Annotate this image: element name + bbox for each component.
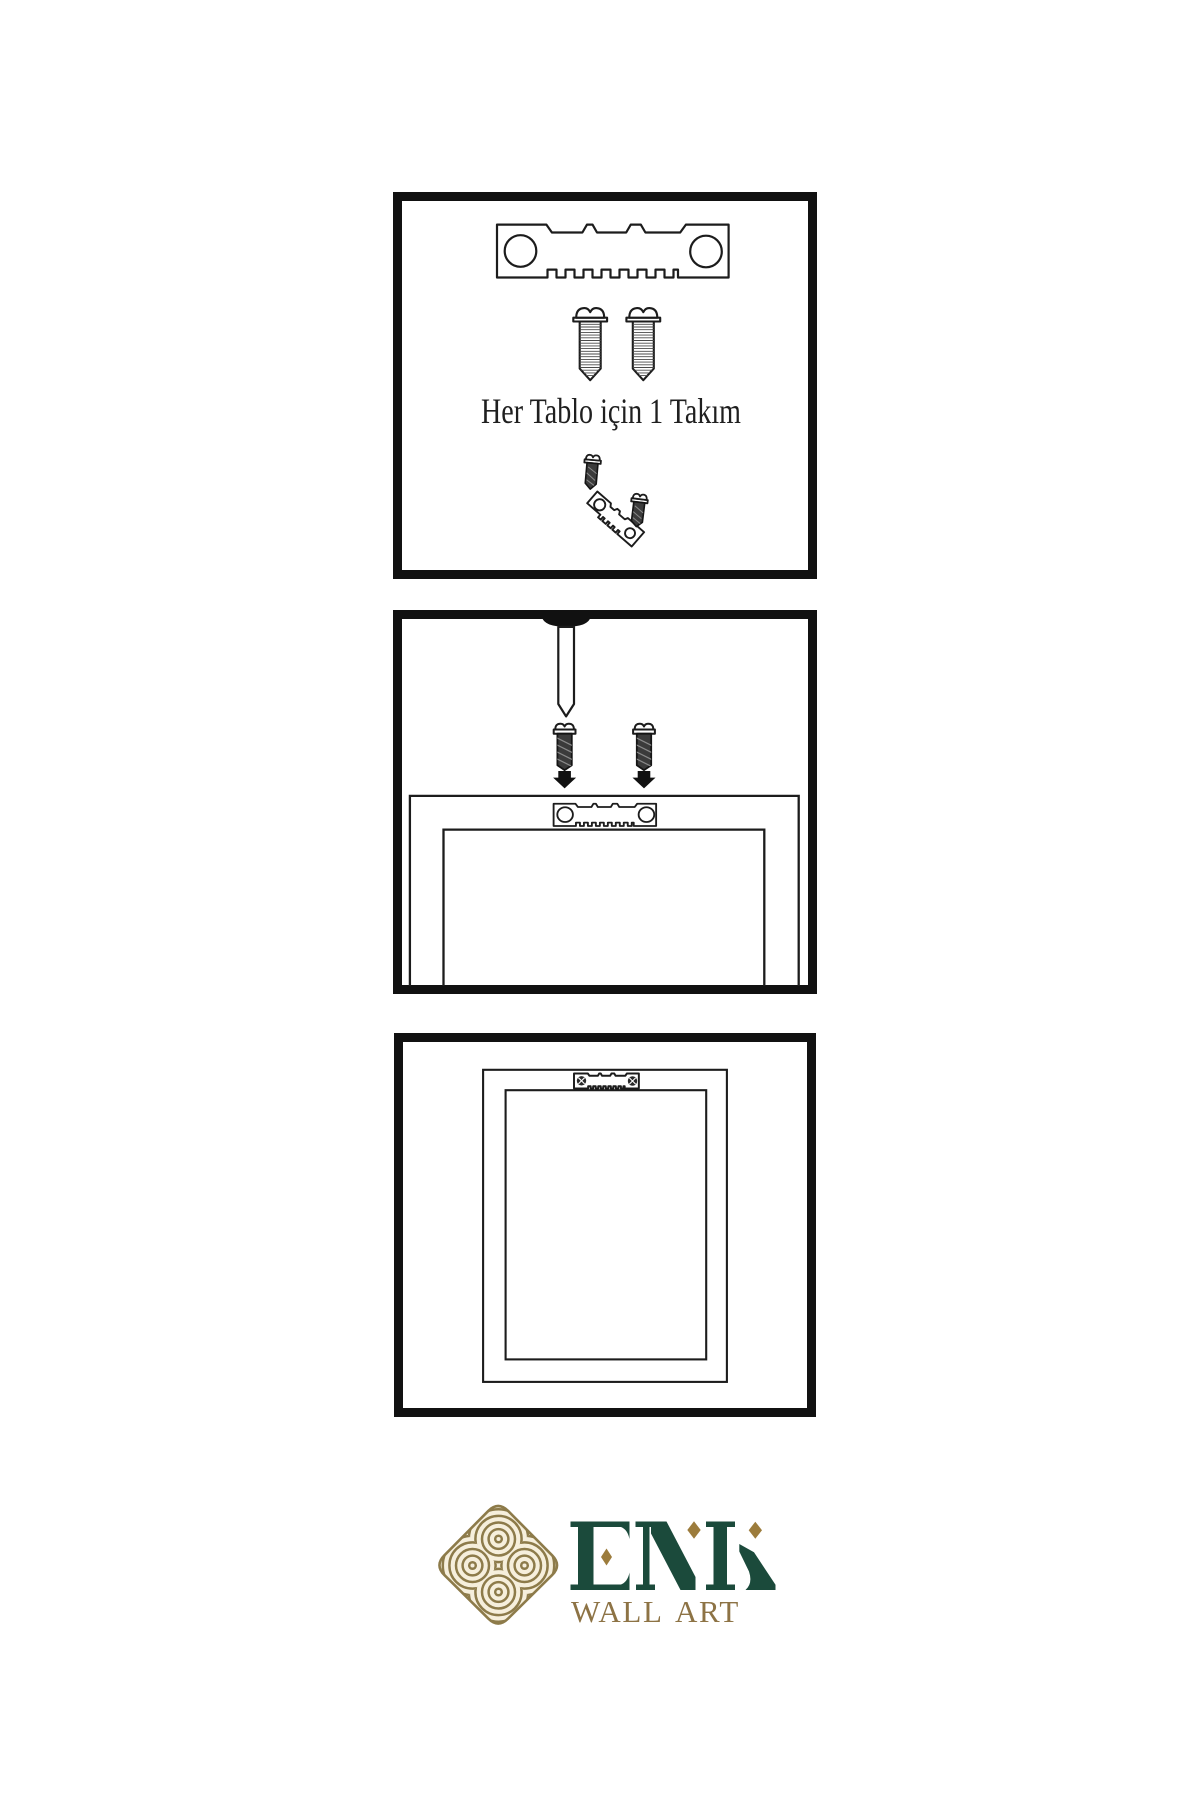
svg-text:Her Tablo için 1 Takım: Her Tablo için 1 Takım: [481, 391, 741, 431]
svg-text:WALL ART: WALL ART: [571, 1594, 740, 1629]
